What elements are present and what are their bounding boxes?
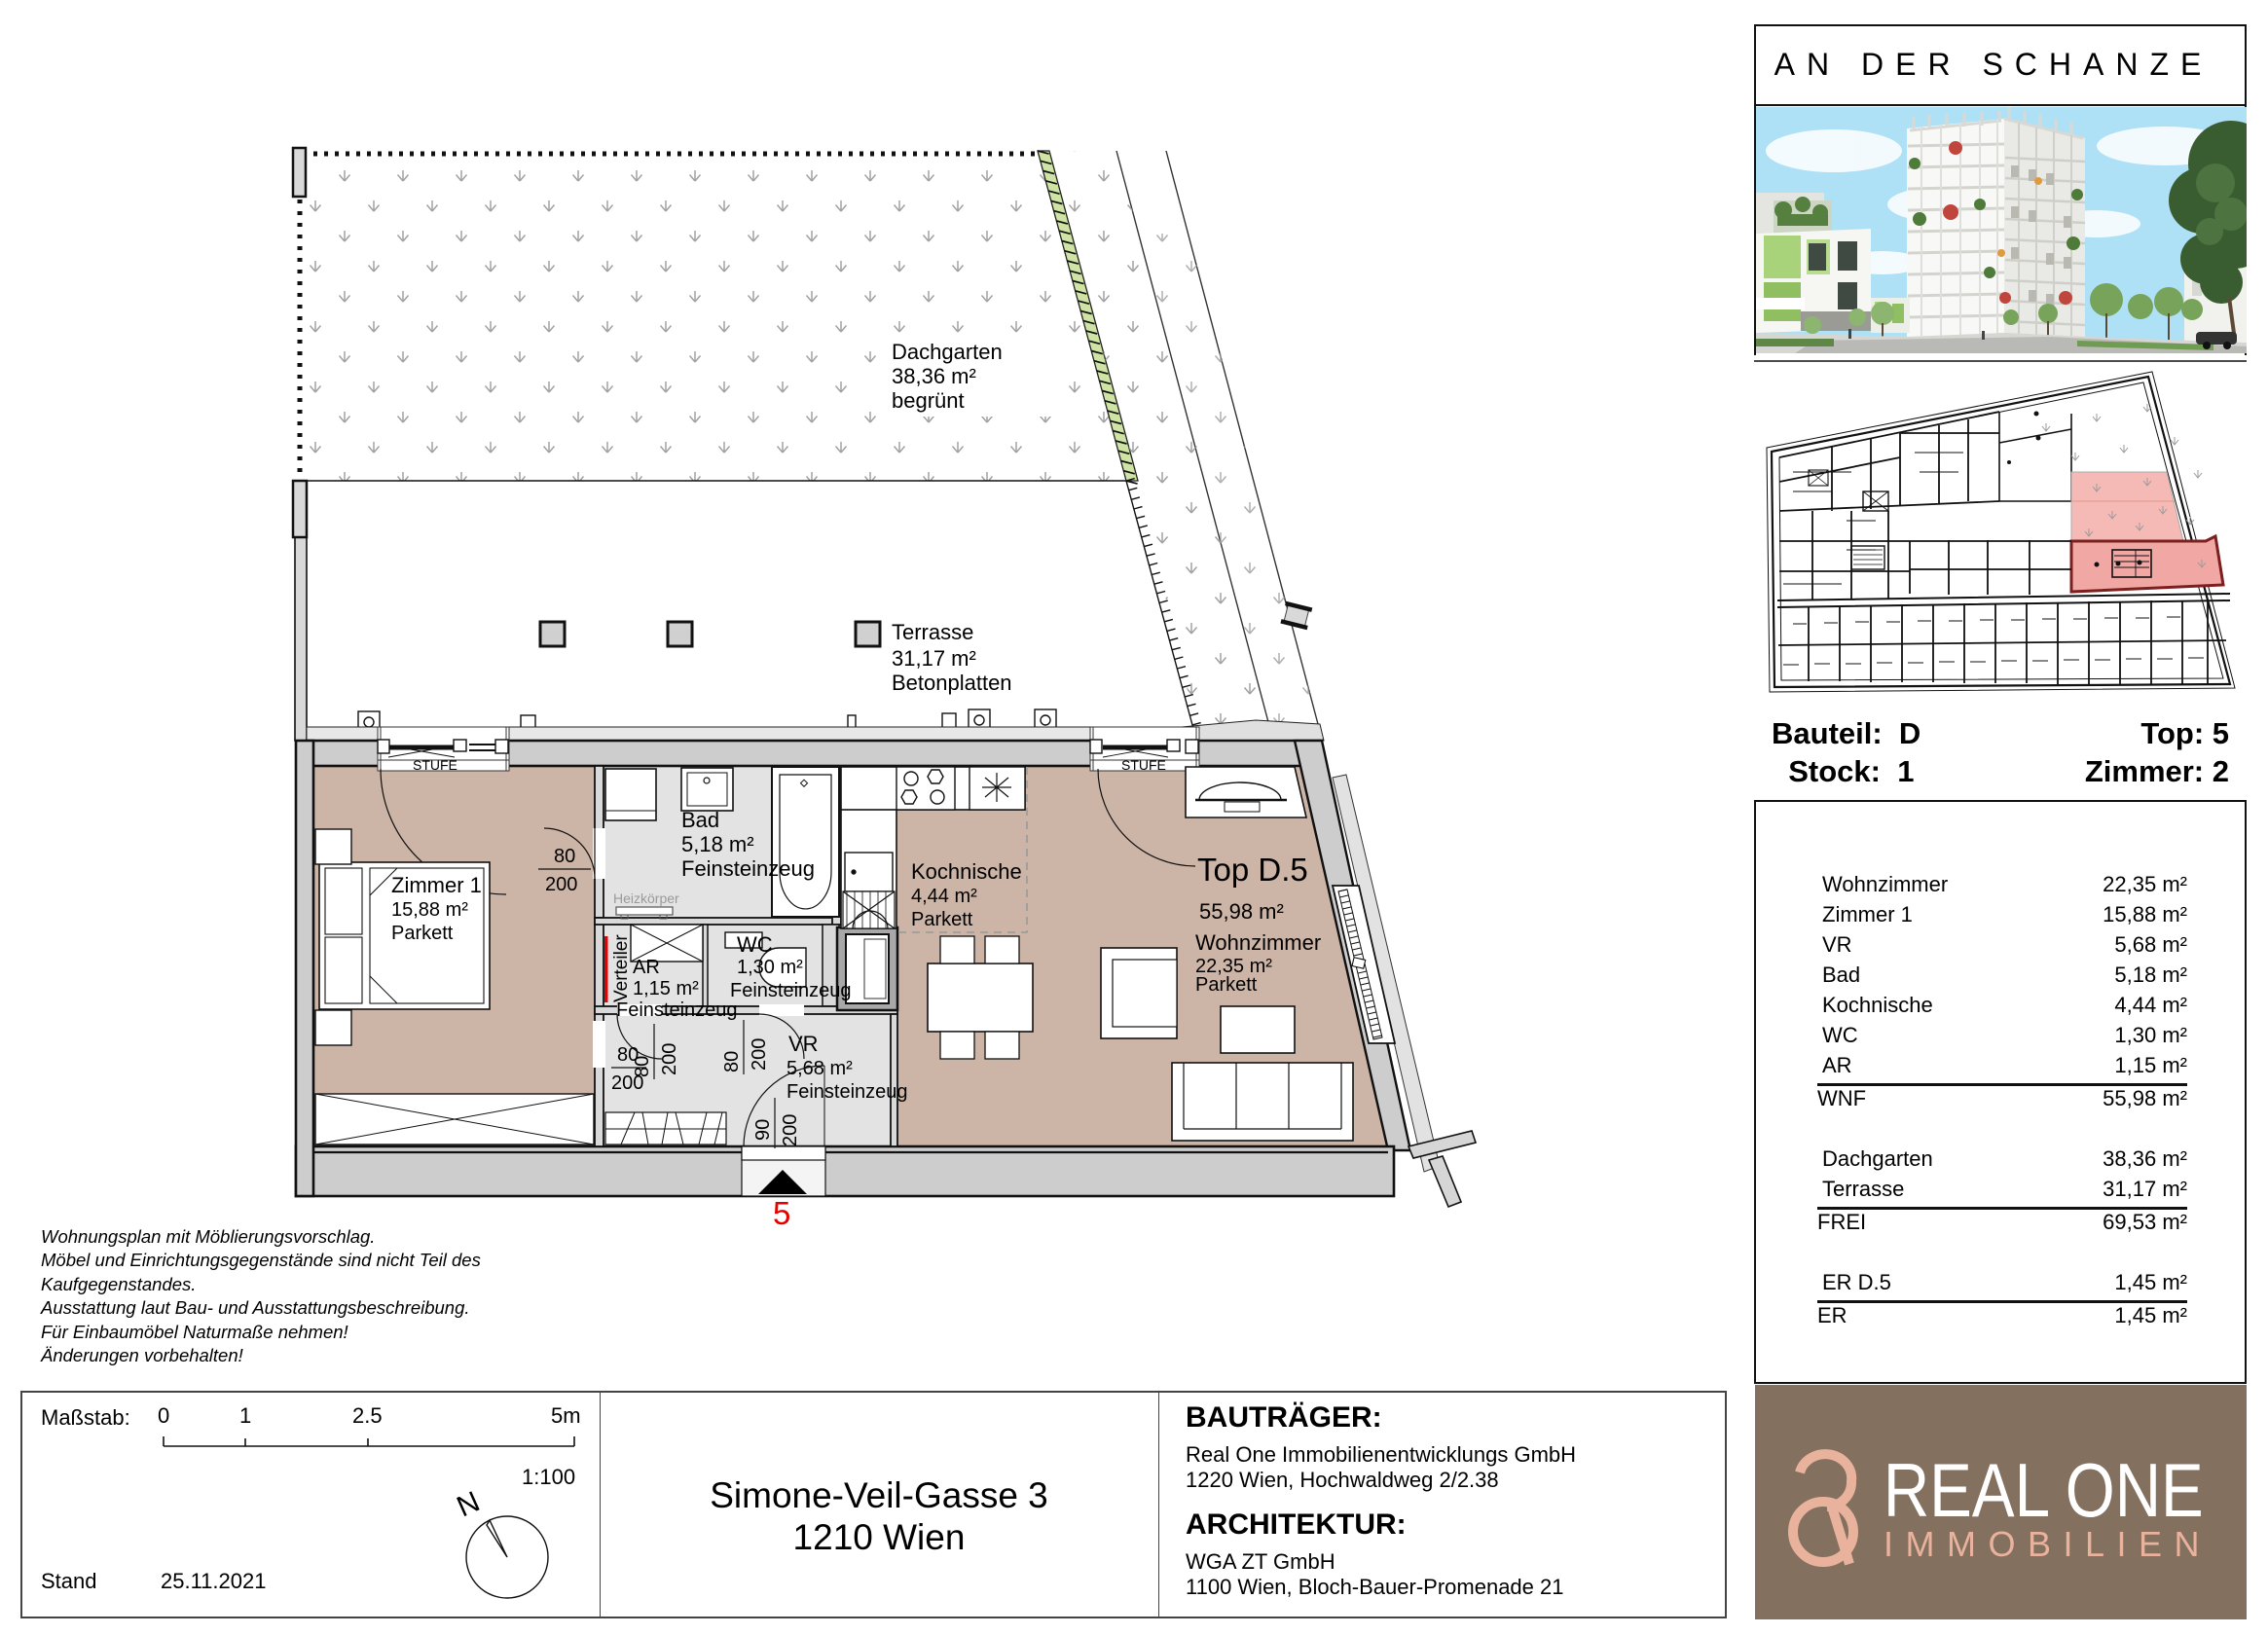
svg-text:IMMOBILIEN: IMMOBILIEN	[1884, 1524, 2212, 1564]
svg-text:0: 0	[158, 1403, 169, 1428]
svg-text:Feinsteinzeug: Feinsteinzeug	[616, 999, 738, 1021]
svg-text:80: 80	[632, 1056, 653, 1077]
svg-text:STUFE: STUFE	[1121, 757, 1166, 773]
svg-text:200: 200	[545, 874, 577, 895]
svg-text:1,30 m²: 1,30 m²	[737, 957, 803, 978]
svg-text:Feinsteinzeug: Feinsteinzeug	[786, 1081, 908, 1103]
svg-text:Parkett: Parkett	[1195, 974, 1258, 996]
svg-text:5m: 5m	[551, 1403, 581, 1428]
svg-text:REAL ONE: REAL ONE	[1884, 1449, 2204, 1534]
svg-text:31,17 m²: 31,17 m²	[892, 646, 976, 671]
svg-text:5,18 m²: 5,18 m²	[681, 832, 754, 856]
svg-text:WC: WC	[737, 932, 773, 957]
svg-text:200: 200	[749, 1038, 770, 1071]
svg-text:1: 1	[239, 1403, 251, 1428]
svg-text:1,15 m²: 1,15 m²	[633, 978, 699, 999]
svg-text:80: 80	[721, 1051, 743, 1072]
svg-text:Kochnische: Kochnische	[911, 859, 1022, 884]
svg-text:5: 5	[773, 1195, 790, 1231]
svg-text:55,98 m²: 55,98 m²	[1199, 899, 1284, 924]
svg-text:Dachgarten: Dachgarten	[892, 340, 1003, 364]
svg-text:15,88 m²: 15,88 m²	[391, 899, 468, 921]
svg-text:begrünt: begrünt	[892, 388, 965, 413]
svg-text:200: 200	[659, 1043, 680, 1075]
svg-text:Parkett: Parkett	[911, 909, 973, 930]
svg-text:AR: AR	[633, 957, 660, 978]
svg-text:Terrasse: Terrasse	[892, 620, 973, 644]
svg-text:Top D.5: Top D.5	[1197, 852, 1308, 888]
svg-text:Parkett: Parkett	[391, 923, 454, 944]
svg-text:Betonplatten: Betonplatten	[892, 671, 1012, 695]
svg-text:Feinsteinzeug: Feinsteinzeug	[681, 856, 815, 881]
svg-text:Bad: Bad	[681, 808, 719, 832]
svg-text:STUFE: STUFE	[413, 757, 457, 773]
svg-text:Verteiler: Verteiler	[611, 934, 632, 1002]
svg-text:Feinsteinzeug: Feinsteinzeug	[730, 980, 852, 1001]
svg-text:Heizkörper: Heizkörper	[613, 890, 679, 906]
svg-text:Zimmer 1: Zimmer 1	[391, 873, 482, 897]
svg-text:80: 80	[554, 846, 575, 867]
svg-text:4,44 m²: 4,44 m²	[911, 886, 977, 907]
svg-text:Wohnzimmer: Wohnzimmer	[1195, 930, 1321, 955]
svg-text:N: N	[453, 1485, 485, 1523]
svg-text:90: 90	[752, 1119, 774, 1141]
svg-text:200: 200	[780, 1114, 801, 1146]
svg-text:38,36 m²: 38,36 m²	[892, 364, 976, 388]
svg-text:2.5: 2.5	[352, 1403, 383, 1428]
svg-text:5,68 m²: 5,68 m²	[786, 1058, 853, 1079]
